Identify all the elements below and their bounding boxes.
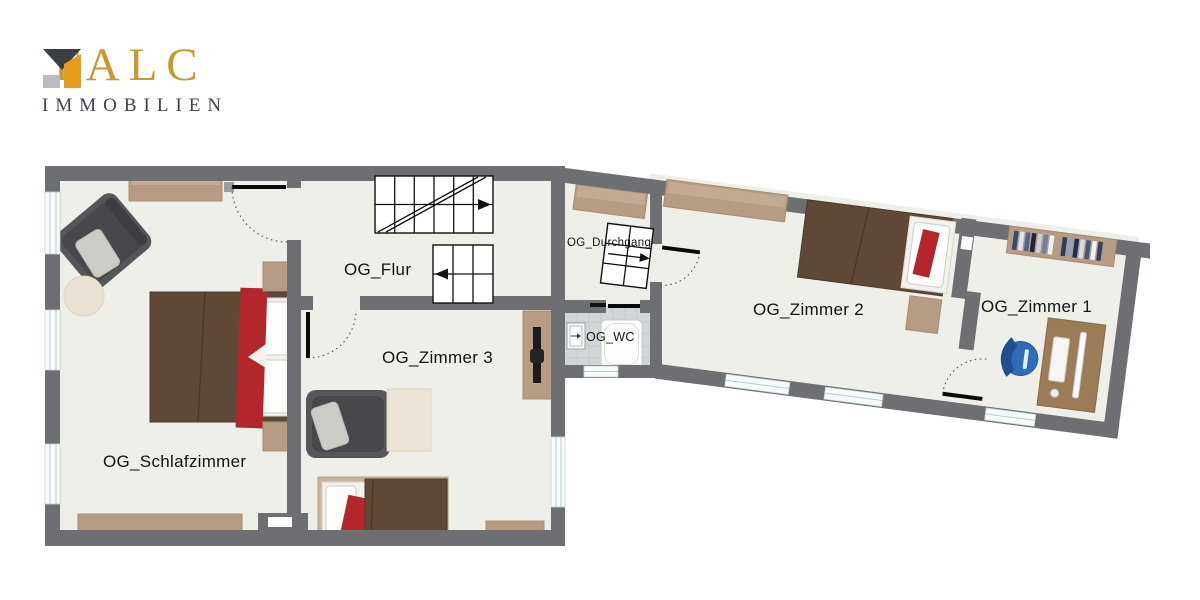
room-label-zimmer3: OG_Zimmer 3 [382,348,493,368]
floorplan: OG_Schlafzimmer OG_Flur OG_Zimmer 3 OG_D… [0,0,1200,600]
room-label-schlafzimmer: OG_Schlafzimmer [103,452,246,472]
room-label-wc: OG_WC [586,330,635,344]
armchair-zimmer3 [306,390,390,458]
mouse [1050,389,1059,398]
page: FALC IMMOBILIEN [0,0,1200,600]
stair-main [375,176,493,233]
wc-sink [567,323,585,349]
wc-bottom-wall [562,365,662,378]
stair-small [433,245,493,303]
round-rug [64,276,104,316]
bed-double-schlafzimmer [150,288,297,429]
windows-left-wall [45,192,60,504]
room-label-zimmer2: OG_Zimmer 2 [753,300,864,320]
room-label-durchgang: OG_Durchgang [567,237,651,249]
wc-bathtub [601,320,642,368]
room-label-zimmer1: OG_Zimmer 1 [981,297,1092,317]
tv-sideboard-zimmer3 [523,311,552,399]
stair-durchgang [601,223,654,288]
window-zimmer3-right [551,437,565,507]
nightstand-zimmer2 [906,296,942,334]
rug-zimmer3 [387,389,431,451]
desk-zimmer1 [1037,318,1106,413]
room-label-flur: OG_Flur [344,260,411,280]
